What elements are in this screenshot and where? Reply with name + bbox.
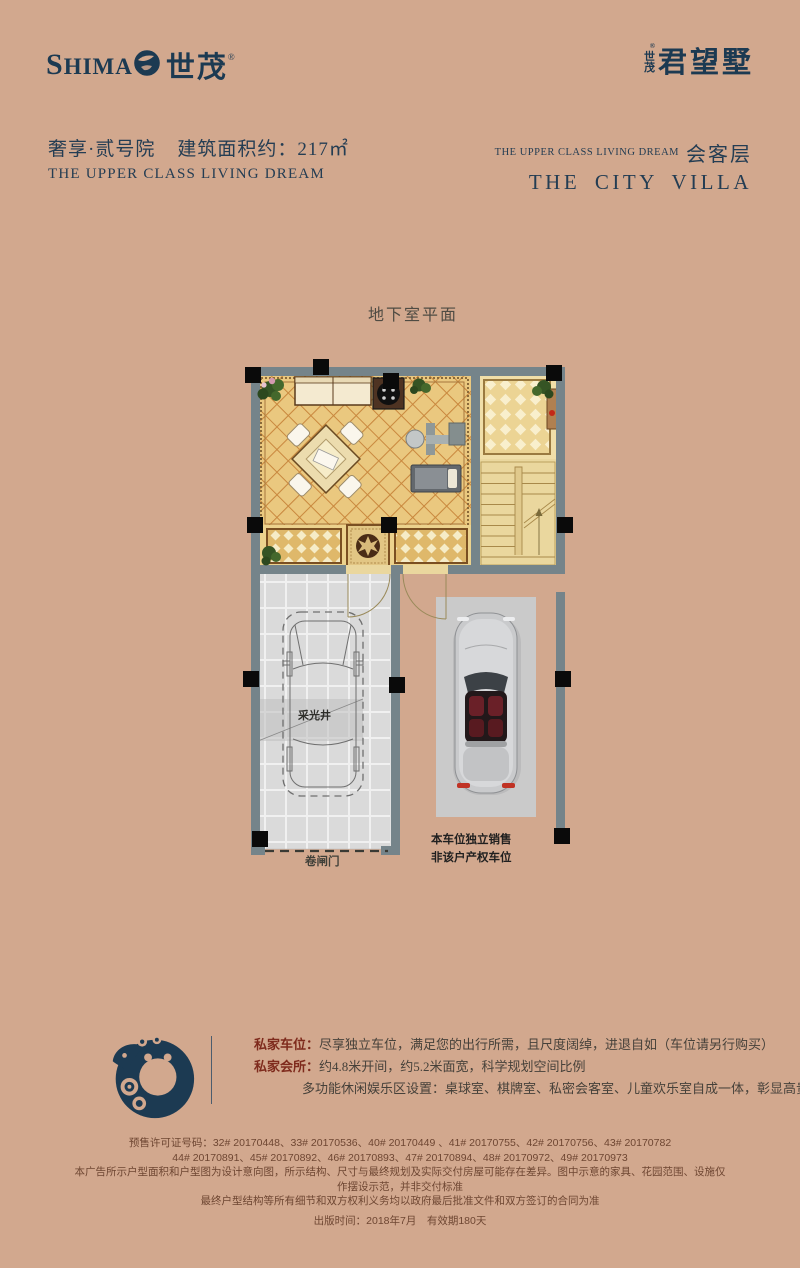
feature-entertainment: 多功能休闲娱乐区设置：桌球室、棋牌室、私密会客室、儿童欢乐室自成一体，彰显高贵生… — [254, 1078, 766, 1100]
legal-line: 最终户型结构等所有细节和双方权利义务均以政府最后批准文件和双方签订的合同为准 — [70, 1194, 730, 1209]
roller-door-label: 卷闸门 — [304, 854, 340, 868]
parking-note-line1: 本车位独立销售 — [431, 832, 512, 846]
dragon-emblem-icon — [101, 1026, 199, 1124]
floor-plan: 采光井 卷闸门 本车位独立销售 非该户产权车位 — [243, 347, 583, 877]
floor-name: 会客层 — [686, 138, 752, 167]
sofa — [295, 377, 371, 405]
flower-icon — [549, 410, 555, 416]
feature-copy: 私家车位：尽享独立车位，满足您的出行所需，且尺度阔绰，进退自如（车位请另行购买）… — [254, 1034, 766, 1100]
product-subtitle: THE UPPER CLASS LIVING DREAM — [48, 166, 349, 183]
divider — [211, 1036, 212, 1104]
registered-mark: ® — [228, 52, 235, 62]
floor-header: THE UPPER CLASS LIVING DREAM 会客层 THE CIT… — [495, 138, 752, 195]
rug-band — [258, 525, 471, 567]
legal-block: 预售许可证号码：32# 20170448、33# 20170536、40# 20… — [70, 1136, 730, 1228]
junwangshu-name: 君望墅 — [658, 48, 754, 78]
feature-club: 私家会所：约4.8米开间，约5.2米面宽，科学规划空间比例 — [254, 1056, 766, 1078]
light-well-label: 采光井 — [297, 708, 331, 722]
shimao-wordmark: SHIMA — [46, 48, 133, 82]
junwangshu-logo: ® 世 茂 君望墅 — [644, 44, 754, 78]
product-title: 奢享·贰号院建筑面积约：217㎡ — [48, 134, 349, 161]
staircase — [479, 459, 557, 567]
massage-table — [411, 465, 461, 492]
car-top-view — [453, 613, 521, 795]
floor-tagline: THE UPPER CLASS LIVING DREAM 会客层 — [495, 138, 752, 167]
plan-title: 地下室平面 — [243, 301, 583, 325]
legal-line: 本广告所示户型面积和户型图为设计意向图，所示结构、尺寸与最终规划及实际交付房屋可… — [70, 1165, 730, 1194]
legal-line: 44# 20170891、45# 20170892、46# 20170893、4… — [70, 1151, 730, 1166]
shimao-cn: 世茂 — [166, 44, 228, 86]
feature-parking: 私家车位：尽享独立车位，满足您的出行所需，且尺度阔绰，进退自如（车位请另行购买） — [254, 1034, 766, 1056]
city-villa-title: THE CITY VILLA — [495, 170, 752, 195]
product-header: 奢享·贰号院建筑面积约：217㎡ THE UPPER CLASS LIVING … — [48, 134, 349, 183]
legal-line: 预售许可证号码：32# 20170448、33# 20170536、40# 20… — [70, 1136, 730, 1151]
legal-publish-date: 出版时间：2018年7月 有效期180天 — [70, 1214, 730, 1229]
globe-icon — [134, 50, 160, 81]
parking-note-line2: 非该户产权车位 — [431, 850, 512, 864]
shimao-logo: SHIMA 世茂 ® — [46, 44, 235, 86]
poster: SHIMA 世茂 ® ® 世 茂 君望墅 奢享·贰号院建筑面积约：217㎡ TH… — [0, 0, 800, 1268]
junwangshu-prefix: ® 世 茂 — [644, 44, 655, 74]
